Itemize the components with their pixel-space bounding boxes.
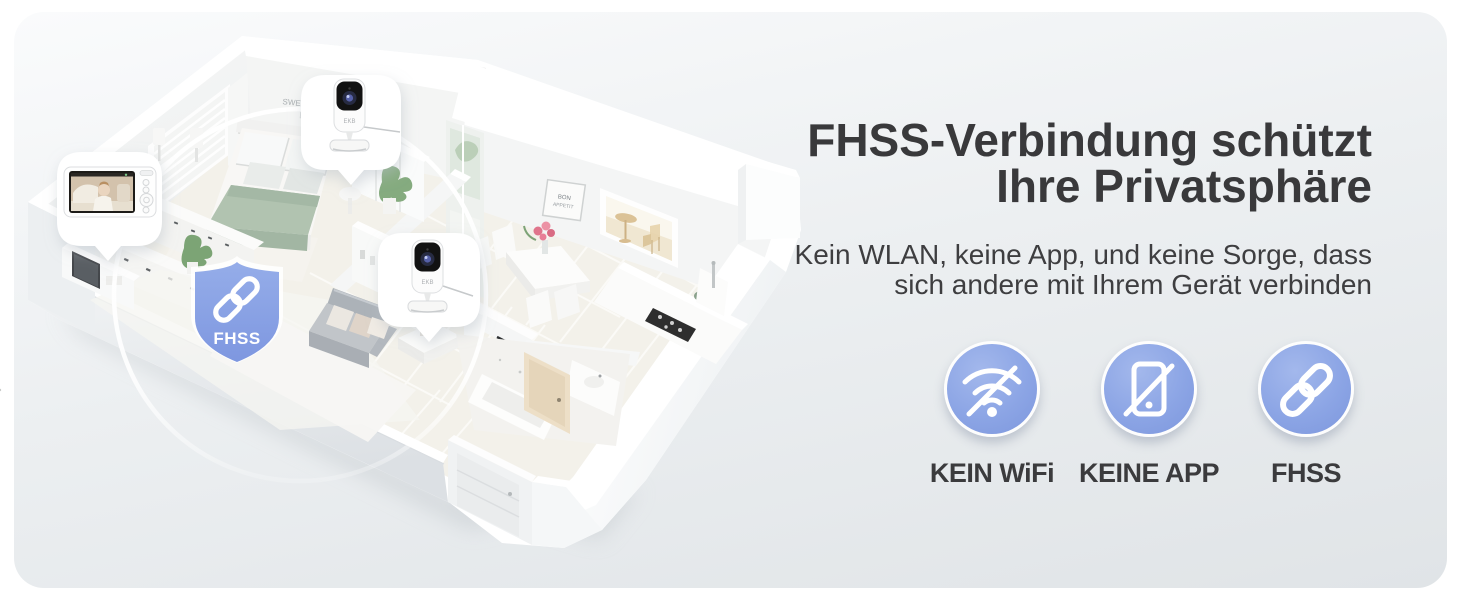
- svg-text:EKB: EKB: [343, 119, 355, 125]
- svg-text:FHSS: FHSS: [213, 329, 260, 348]
- svg-text:EKB: EKB: [421, 280, 433, 286]
